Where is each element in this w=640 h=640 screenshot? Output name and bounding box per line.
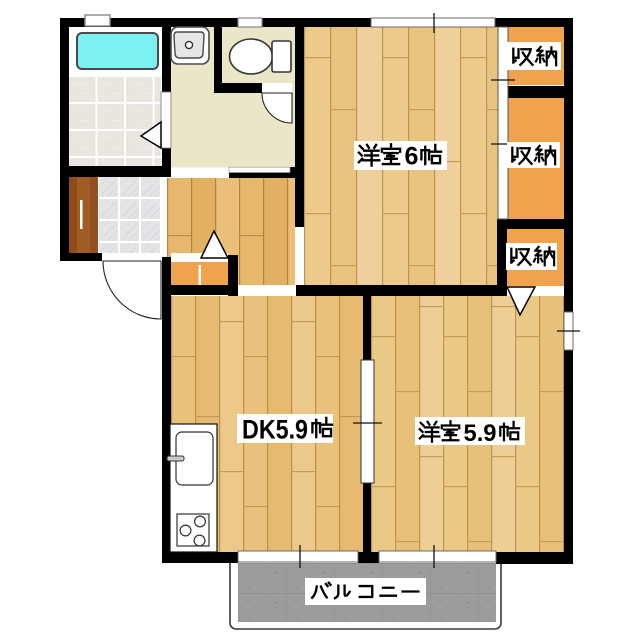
svg-text:6: 6: [405, 143, 419, 171]
svg-text:DK5.9: DK5.9: [242, 415, 308, 445]
svg-text:5.9: 5.9: [464, 420, 497, 447]
